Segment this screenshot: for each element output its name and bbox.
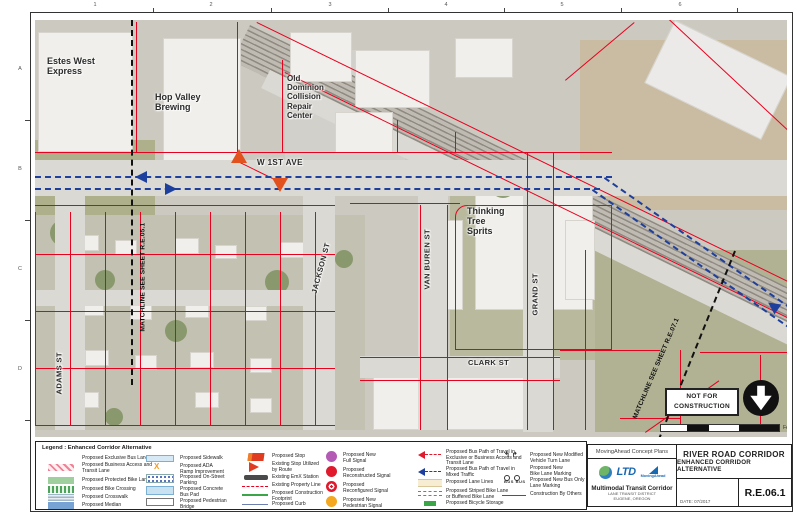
construction-by-others-icon: [502, 495, 526, 496]
striped-bike-lane-icon: [418, 491, 442, 496]
bus-path-line: [35, 176, 612, 178]
label-old-dominion: Old Dominion Collision Repair Center: [287, 74, 324, 120]
building: [335, 112, 393, 154]
scale-segment: [687, 425, 709, 431]
proposed-stop-icon: [247, 453, 264, 461]
org-block: Multimodal Transit Corridor LANE TRANSIT…: [588, 485, 676, 506]
matchline-left: [131, 20, 133, 385]
legend-label: Proposed New Bus Only Lane Marking: [530, 478, 584, 489]
legend-label: Proposed New Pedestrian Signal: [343, 498, 382, 509]
grid-number: 1: [89, 2, 101, 8]
parcel-line: [397, 120, 398, 152]
title-block: MovingAhead Concept Plans LTD MovingAhea…: [587, 444, 792, 507]
scale-segment: [739, 425, 779, 431]
bus-direction-arrow-east: [165, 183, 177, 195]
building: [355, 50, 430, 108]
tree: [335, 250, 353, 268]
legend-label: Existing Stop Utilized by Route: [272, 462, 319, 473]
concrete-bus-pad-swatch: [146, 486, 174, 495]
movingahead-logo-icon: [649, 466, 658, 474]
label-adams-st: ADAMS ST: [55, 341, 64, 395]
label-grand-st: GRAND ST: [531, 260, 540, 316]
scale-bar-segments: [660, 424, 780, 432]
full-signal-icon: [326, 451, 337, 462]
curb-icon: [242, 504, 268, 505]
label-van-buren-st: VAN BUREN ST: [423, 220, 432, 290]
legend-label: Proposed Reconstructed Signal: [343, 468, 391, 479]
legend-label: Proposed Crosswalk: [82, 495, 128, 501]
parcel-grid: [35, 212, 335, 426]
legend-label: Proposed Bicycle Storage: [446, 501, 504, 507]
crosswalk-swatch: [48, 494, 74, 501]
property-line-icon: [242, 486, 268, 487]
legend-label: Proposed Pedestrian Bridge: [180, 499, 227, 510]
parcel-line: [420, 205, 421, 430]
grid-number: 3: [324, 2, 336, 8]
legend-label: Proposed Exclusive Bus Lane: [82, 456, 148, 462]
on-street-parking-swatch: [146, 474, 174, 483]
date-cell: DATE: 07/2017: [677, 479, 739, 506]
legend-label: Proposed New Full Signal: [343, 453, 376, 464]
legend-label: Proposed Stop: [272, 454, 305, 460]
parcel-line: [360, 380, 560, 381]
bat-lane-swatch: [48, 464, 74, 471]
bus-path-line: [35, 188, 600, 190]
legend-label: Construction By Others: [530, 492, 582, 498]
road-clark-st: [360, 356, 560, 378]
legend-label: Existing Property Line: [272, 483, 321, 489]
legend-title: Legend : Enhanced Corridor Alternative: [42, 445, 152, 451]
grid-number: 5: [556, 2, 568, 8]
project-title-line2: ENHANCED CORRIDOR ALTERNATIVE: [677, 459, 791, 473]
project-title-line1: RIVER ROAD CORRIDOR: [683, 450, 785, 459]
parcel-line: [350, 203, 460, 204]
label-w-1st-ave: W 1ST AVE: [257, 158, 303, 167]
label-hop-valley-brewing: Hop Valley Brewing: [155, 92, 201, 112]
parcel-line: [560, 350, 660, 351]
scale-segment: [709, 425, 739, 431]
bicycle-storage-icon: [424, 501, 436, 506]
scale-bar: Feet: [660, 424, 787, 432]
building: [455, 38, 513, 78]
legend-label: Proposed Median: [82, 503, 121, 509]
parcel-line: [282, 60, 283, 152]
legend-label: Proposed Protected Bike Lane: [82, 478, 150, 484]
emx-station-icon: [244, 475, 268, 480]
movingahead-logo: MovingAhead: [641, 466, 666, 478]
legend-label: Proposed Lane Lines: [446, 480, 493, 486]
existing-stop-marker: [231, 149, 247, 163]
label-estes-west-express: Estes West Express: [47, 56, 95, 76]
legend-label: Proposed Striped Bike Lane or Buffered B…: [446, 489, 508, 500]
concept-plans-label: MovingAhead Concept Plans: [588, 445, 676, 459]
legend-label: Proposed New Modified Vehicle Turn Lane: [530, 453, 583, 464]
exclusive-bus-lane-swatch: [48, 455, 74, 462]
parcel-line: [700, 352, 787, 353]
parcel-line: [136, 22, 137, 152]
grid-letter: C: [14, 266, 26, 272]
legend-label: Proposed Sidewalk: [180, 456, 223, 462]
parcel-line: [620, 418, 680, 419]
reconfigured-signal-icon: [326, 481, 337, 492]
grid-number: 4: [440, 2, 452, 8]
sidewalk-swatch: [146, 455, 174, 462]
ltd-logo: LTD: [617, 466, 636, 478]
road-w-1st-ave: [35, 160, 787, 196]
plan-sheet: 1 2 3 4 5 6 A B C D: [0, 0, 800, 518]
lane-lines-swatch: [418, 479, 442, 487]
bus-path-mixed-arrow: [418, 468, 442, 476]
label-thinking-tree: Thinking Tree Sprits: [467, 206, 505, 236]
legend-label: Proposed On-Street Parking: [180, 475, 224, 486]
parcel-line: [447, 205, 448, 430]
aerial-map: MATCHLINE SEE SHEET R.E.05.1 MATCHLINE S…: [35, 20, 787, 437]
legend-label: Proposed Business Access and Transit Lan…: [82, 463, 152, 474]
sheet-number: R.E.06.1: [739, 479, 791, 506]
existing-stop-marker: [272, 178, 288, 192]
grid-number: 6: [674, 2, 686, 8]
parcel-line: [455, 132, 456, 152]
median-swatch: [48, 502, 74, 509]
legend-panel: Legend : Enhanced Corridor Alternative P…: [35, 441, 587, 510]
legend-label: Proposed Curb: [272, 502, 306, 508]
parcel-line: [360, 357, 560, 358]
grid-letter: B: [14, 166, 26, 172]
existing-stop-icon: [249, 462, 259, 472]
parcel-line: [237, 22, 238, 152]
reconstructed-signal-icon: [326, 466, 337, 477]
pedestrian-bridge-swatch: [146, 498, 174, 506]
bike-crossing-swatch: [48, 486, 74, 493]
legend-label: Existing EmX Station: [272, 475, 319, 481]
matchline-left-label: MATCHLINE SEE SHEET R.E.05.1: [140, 172, 147, 332]
legend-label: Proposed Reconfigured Signal: [343, 483, 388, 494]
vehicle-turn-lane-icon: ↰ ↱: [504, 451, 518, 459]
north-arrow-icon: [743, 380, 779, 416]
date-label: DATE: 07/2017: [680, 499, 710, 504]
project-title: RIVER ROAD CORRIDOR ENHANCED CORRIDOR AL…: [677, 445, 791, 479]
not-for-construction-stamp: NOT FOR CONSTRUCTION: [665, 388, 739, 416]
grid-letter: D: [14, 366, 26, 372]
scale-segment: [661, 425, 687, 431]
transit-globe-logo-icon: [599, 466, 612, 479]
legend-label: Proposed Bike Crossing: [82, 487, 136, 493]
bus-path-exclusive-arrow: [418, 451, 442, 459]
legend-label: Proposed New Bike Lane Marking: [530, 466, 571, 477]
bike-lane-marking-icon: [504, 468, 524, 473]
label-clark-st: CLARK ST: [468, 358, 509, 367]
construction-footprint-icon: [242, 494, 268, 496]
title-block-bottom: DATE: 07/2017 R.E.06.1: [677, 479, 791, 506]
protected-bike-lane-swatch: [48, 477, 74, 484]
legend-label: Proposed Concrete Bus Pad: [180, 487, 223, 498]
pedestrian-signal-icon: [326, 496, 337, 507]
logo-row: LTD MovingAhead: [588, 459, 676, 485]
ada-ramp-icon: X: [154, 462, 159, 471]
grid-number: 2: [205, 2, 217, 8]
bus-only-marking-icon: BUS BUS: [504, 479, 526, 484]
grid-letter: A: [14, 66, 26, 72]
org-line2: EUGENE, OREGON: [588, 497, 676, 502]
parcel-line: [35, 205, 335, 206]
title-block-left: MovingAhead Concept Plans LTD MovingAhea…: [588, 445, 677, 506]
title-block-right: RIVER ROAD CORRIDOR ENHANCED CORRIDOR AL…: [677, 445, 791, 506]
building: [38, 32, 133, 152]
scale-unit-label: Feet: [783, 425, 787, 431]
